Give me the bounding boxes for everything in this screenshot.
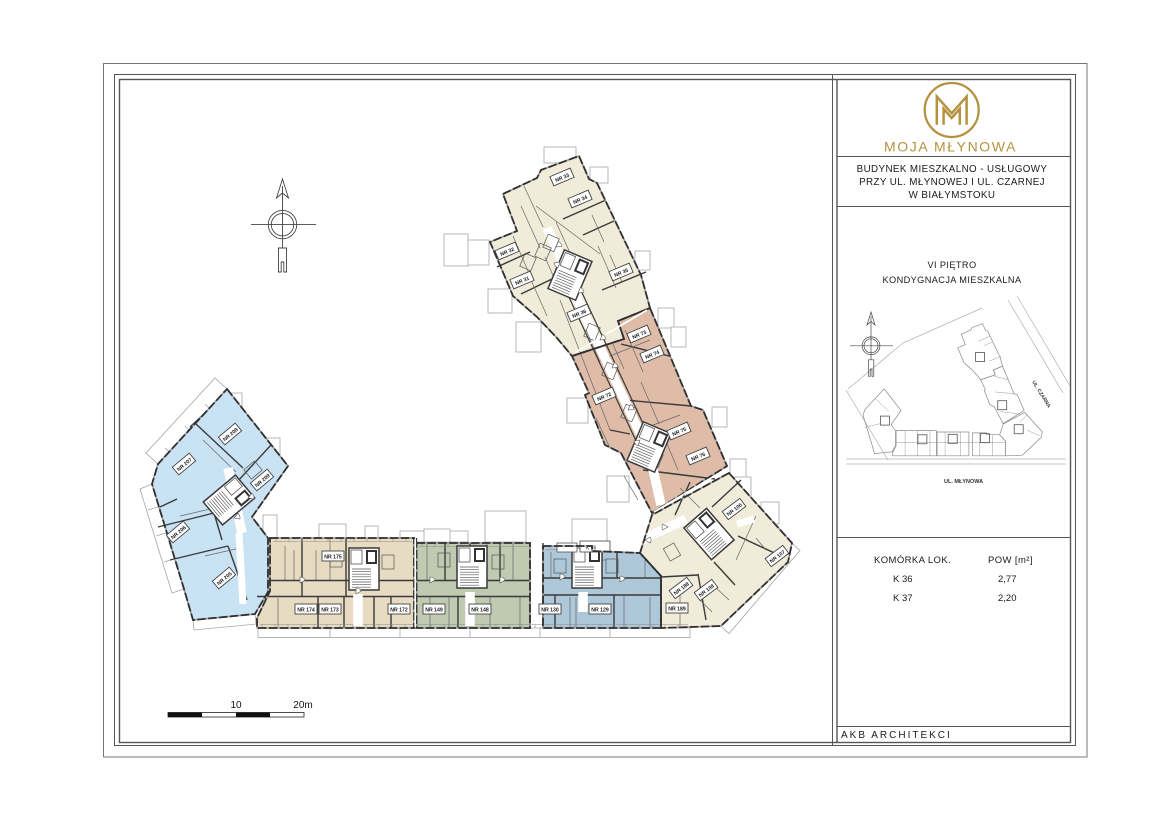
svg-text:POW [m²]: POW [m²] — [988, 555, 1033, 566]
svg-text:K 36: K 36 — [893, 574, 913, 585]
svg-text:2,20: 2,20 — [998, 593, 1017, 604]
svg-text:MOJA MŁYNOWA: MOJA MŁYNOWA — [884, 139, 1017, 155]
svg-text:NR 130: NR 130 — [541, 607, 559, 613]
svg-text:NR 173: NR 173 — [321, 607, 339, 613]
svg-text:AKB ARCHITEKCI: AKB ARCHITEKCI — [841, 730, 952, 741]
svg-text:BUDYNEK MIESZKALNO - USŁUGOWY: BUDYNEK MIESZKALNO - USŁUGOWY — [857, 164, 1048, 175]
svg-text:NR 174: NR 174 — [297, 607, 315, 613]
svg-text:20m: 20m — [293, 700, 312, 711]
svg-text:NR 172: NR 172 — [390, 607, 408, 613]
svg-text:2,77: 2,77 — [998, 574, 1017, 585]
svg-text:KONDYGNACJA MIESZKALNA: KONDYGNACJA MIESZKALNA — [883, 275, 1022, 285]
svg-text:VI PIĘTRO: VI PIĘTRO — [927, 260, 976, 270]
svg-text:KOMÓRKA LOK.: KOMÓRKA LOK. — [874, 555, 951, 566]
svg-text:K 37: K 37 — [893, 593, 913, 604]
svg-text:10: 10 — [230, 700, 242, 711]
svg-text:NR 175: NR 175 — [324, 554, 342, 560]
svg-text:UL. MŁYNOWA: UL. MŁYNOWA — [944, 479, 983, 485]
svg-text:NR 149: NR 149 — [425, 607, 443, 613]
svg-text:W BIAŁYMSTOKU: W BIAŁYMSTOKU — [909, 190, 996, 201]
svg-text:PRZY UL. MŁYNOWEJ I UL. CZA: PRZY UL. MŁYNOWEJ I UL. CZARNEJ — [859, 177, 1045, 188]
svg-text:NR 148: NR 148 — [471, 607, 489, 613]
svg-text:NR 129: NR 129 — [591, 607, 609, 613]
svg-text:NR 189: NR 189 — [668, 606, 686, 612]
